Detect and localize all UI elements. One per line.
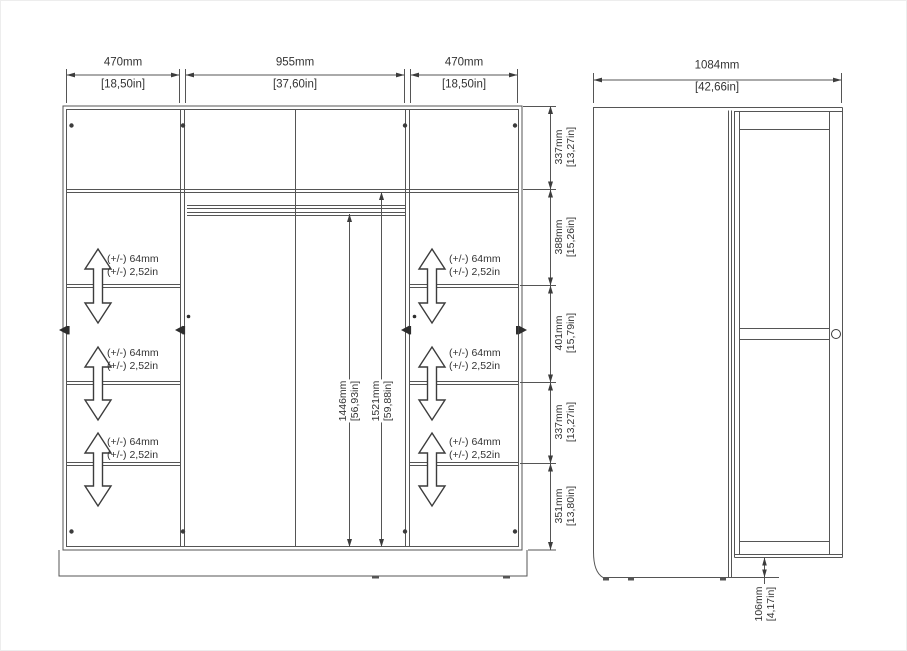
front-width-right-in: [18,50in]	[442, 79, 486, 92]
chain-dim-3: 401mm [15,79in]	[553, 313, 577, 353]
front-view-shelves	[66, 190, 519, 466]
hinge-dots	[69, 123, 517, 533]
adjust-label-left-1: (+/-) 64mm (+/-) 2,52in	[107, 253, 159, 278]
side-depth-in: [42,66in]	[695, 82, 739, 95]
door-lock-marks	[59, 315, 527, 335]
side-depth-mm: 1084mm	[695, 60, 740, 73]
front-height-chain-lines	[520, 106, 556, 550]
front-view-carcass	[63, 106, 522, 550]
door-knob	[832, 330, 841, 339]
adjust-label-right-3: (+/-) 64mm (+/-) 2,52in	[449, 436, 501, 461]
chain-dim-5: 351mm [13,80in]	[553, 486, 577, 526]
interior-dim-1521: 1521mm [59,88in]	[370, 380, 394, 423]
chain-dim-4: 337mm [13,27in]	[553, 402, 577, 442]
front-width-left-in: [18,50in]	[101, 79, 145, 92]
adjust-label-right-2: (+/-) 64mm (+/-) 2,52in	[449, 347, 501, 372]
chain-dim-1: 337mm [13,27in]	[553, 127, 577, 167]
wardrobe-dimension-drawing: 470mm [18,50in] 955mm [37,60in] 470mm [1…	[0, 0, 907, 651]
interior-dimension-lines	[347, 192, 384, 547]
front-width-left-mm: 470mm	[104, 57, 142, 70]
interior-dim-1446: 1446mm [56,93in]	[337, 380, 361, 423]
side-view-body	[593, 108, 843, 581]
adjust-label-right-1: (+/-) 64mm (+/-) 2,52in	[449, 253, 501, 278]
side-plinth-dimension-lines	[731, 558, 779, 585]
drawing-linework	[1, 1, 907, 651]
front-view-plinth	[59, 550, 527, 579]
front-width-right-mm: 470mm	[445, 57, 483, 70]
front-width-center-mm: 955mm	[276, 57, 314, 70]
adjust-label-left-3: (+/-) 64mm (+/-) 2,52in	[107, 436, 159, 461]
plinth-dim: 106mm [4,17in]	[753, 586, 777, 621]
side-view-door	[735, 108, 843, 558]
chain-dim-2: 388mm [15,26in]	[553, 217, 577, 257]
adjust-label-left-2: (+/-) 64mm (+/-) 2,52in	[107, 347, 159, 372]
front-width-center-in: [37,60in]	[273, 79, 317, 92]
